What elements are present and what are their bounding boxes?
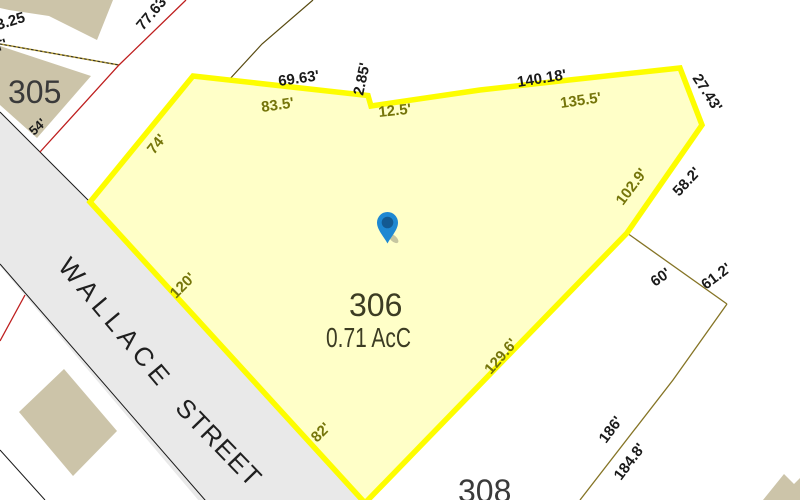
svg-text:12.5': 12.5' (378, 101, 412, 121)
svg-text:308: 308 (458, 473, 511, 500)
svg-text:306: 306 (349, 287, 402, 323)
svg-text:0.71 AcC: 0.71 AcC (326, 322, 411, 353)
svg-text:305: 305 (8, 74, 61, 110)
